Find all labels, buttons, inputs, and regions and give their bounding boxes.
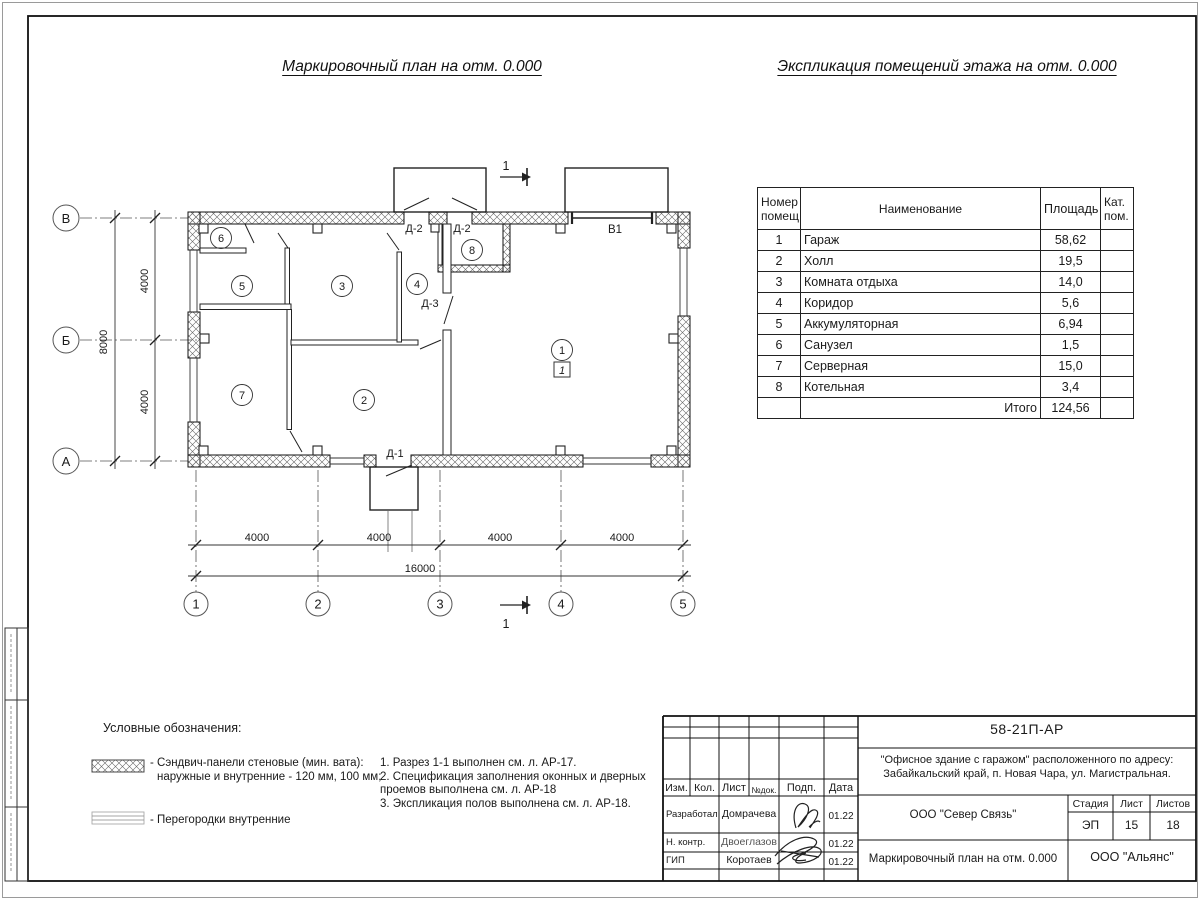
col-header-num: Номер помещ. [758, 188, 801, 230]
legend-note-3: 3. Экспликация полов выполнена см. л. АР… [380, 798, 646, 812]
cell-area: 3,4 [1041, 377, 1101, 398]
explication-table-wrap: Номер помещ. Наименование Площадь Кат. п… [757, 187, 1134, 419]
col-header-num-l1: Номер [761, 195, 797, 209]
col-header-cat-l1: Кат. [1104, 195, 1130, 209]
partition-7-2 [287, 310, 292, 430]
header-podp: Подп. [779, 782, 824, 795]
dim-4000-c: 4000 [488, 532, 512, 544]
legend-swatch-sandwich [92, 760, 144, 772]
axis-label-v: В [62, 211, 71, 226]
door-label-d2a: Д-2 [405, 223, 422, 235]
cell-area: 5,6 [1041, 293, 1101, 314]
dim-4000-e: 4000 [139, 269, 151, 293]
dim-4000-d: 4000 [610, 532, 634, 544]
role-ncontrol: Н. контр. [666, 837, 705, 848]
dimension-lines [115, 210, 691, 576]
cell-area: 15,0 [1041, 356, 1101, 377]
cell-num: 4 [758, 293, 801, 314]
dim-4000-a: 4000 [245, 532, 269, 544]
col-header-num-l2: помещ. [761, 209, 797, 223]
section-label-bottom: 1 [503, 617, 510, 631]
cell-area: 19,5 [1041, 251, 1101, 272]
dim-4000-f: 4000 [139, 390, 151, 414]
cell-name: Санузел [801, 335, 1041, 356]
cell-cat [1101, 272, 1134, 293]
name-developer: Домрачева [719, 808, 779, 821]
section-mark-bottom: 1 [500, 596, 531, 631]
porch-top-left [394, 168, 486, 212]
doc-number: 58-21П-АР [858, 723, 1196, 736]
total-value: 124,56 [1041, 398, 1101, 419]
cell-cat [1101, 230, 1134, 251]
axis-label-2: 2 [314, 597, 321, 612]
col-header-area: Площадь [1041, 188, 1101, 230]
header-list: Лист [719, 782, 749, 795]
legend-notes: 1. Разрез 1-1 выполнен см. л. АР-17. 2. … [380, 757, 646, 811]
contractor-name: ООО "Альянс" [1068, 851, 1196, 864]
date-developer: 01.22 [824, 810, 858, 823]
explication-title: Экспликация помещений этажа на отм. 0.00… [775, 58, 1119, 76]
windows [190, 248, 687, 464]
porch-bottom [370, 467, 418, 510]
cell-num: 2 [758, 251, 801, 272]
cell-cat [1101, 398, 1134, 419]
axis-label-b: Б [62, 333, 71, 348]
dim-16000: 16000 [405, 563, 436, 575]
room-label-6: 6 [218, 233, 224, 245]
cell-num: 6 [758, 335, 801, 356]
cell-cat [1101, 314, 1134, 335]
col-header-cat: Кат. пом. [1101, 188, 1134, 230]
dim-4000-b: 4000 [367, 532, 391, 544]
dimension-texts: 4000 4000 4000 4000 16000 4000 4000 8000 [98, 269, 634, 575]
cell-cat [1101, 377, 1134, 398]
drawing-sheet: { "titles": { "plan": "Маркировочный пла… [0, 0, 1200, 900]
door-label-d2b: Д-2 [453, 223, 470, 235]
room-label-2: 2 [361, 395, 367, 407]
cell-name: Аккумуляторная [801, 314, 1041, 335]
name-ncontrol: Двоеглазов [719, 836, 779, 849]
header-stage: Стадия [1068, 798, 1113, 811]
dim-8000: 8000 [98, 330, 110, 354]
door-label-d1: Д-1 [386, 448, 403, 460]
sheets-total: 18 [1150, 819, 1196, 832]
date-gip: 01.22 [824, 856, 858, 869]
cell-area: 14,0 [1041, 272, 1101, 293]
legend-swatch-partition [92, 812, 144, 824]
header-sheet: Лист [1113, 798, 1150, 811]
axis-label-5: 5 [679, 597, 686, 612]
cell-num: 5 [758, 314, 801, 335]
header-kol: Кол. [690, 782, 719, 795]
cell-empty [758, 398, 801, 419]
header-izm: Изм. [663, 782, 690, 795]
cell-cat [1101, 356, 1134, 377]
name-gip: Коротаев [719, 854, 779, 867]
cell-name: Котельная [801, 377, 1041, 398]
table-row: 8 Котельная 3,4 [758, 377, 1134, 398]
legend-swatches [92, 760, 144, 824]
signatures [775, 804, 821, 864]
table-row: 5 Аккумуляторная 6,94 [758, 314, 1134, 335]
legend-note-2: 2. Спецификация заполнения оконных и две… [380, 771, 646, 785]
cell-name: Холл [801, 251, 1041, 272]
header-sheets: Листов [1150, 798, 1196, 811]
room-circles [211, 228, 573, 411]
explication-table: Номер помещ. Наименование Площадь Кат. п… [757, 187, 1134, 419]
header-data: Дата [824, 782, 858, 795]
room-label-5: 5 [239, 281, 245, 293]
legend-item-partition: - Перегородки внутренние [150, 814, 291, 828]
porch-top-right [565, 168, 668, 212]
partition-5-3 [285, 248, 290, 308]
axis-label-4: 4 [557, 597, 564, 612]
legend-title: Условные обозначения: [103, 722, 242, 736]
gate-v1 [572, 212, 652, 224]
table-row: 7 Серверная 15,0 [758, 356, 1134, 377]
partitions [200, 224, 451, 455]
section-label-top: 1 [503, 159, 510, 173]
cell-area: 58,62 [1041, 230, 1101, 251]
axis-labels-bottom: 1 2 3 4 5 [192, 597, 686, 612]
axis-label-a: А [62, 454, 71, 469]
table-row: 1 Гараж 58,62 [758, 230, 1134, 251]
cell-name: Серверная [801, 356, 1041, 377]
room-label-3: 3 [339, 281, 345, 293]
cell-num: 3 [758, 272, 801, 293]
sheet-number: 15 [1113, 819, 1150, 832]
role-gip: ГИП [666, 855, 685, 866]
room-label-7: 7 [239, 390, 245, 402]
cell-area: 6,94 [1041, 314, 1101, 335]
left-margin-stamp [5, 628, 28, 881]
cell-cat [1101, 293, 1134, 314]
floor-plan: 1 2 3 4 5 6 7 8 1 Д-2 Д-2 Д-3 Д-1 В1 1 [53, 159, 695, 631]
col-header-cat-l2: пом. [1104, 209, 1130, 223]
table-total-row: Итого 124,56 [758, 398, 1134, 419]
col-header-name: Наименование [801, 188, 1041, 230]
porch-steps [388, 510, 412, 552]
cell-num: 7 [758, 356, 801, 377]
room-label-1: 1 [559, 345, 565, 357]
date-ncontrol: 01.22 [824, 838, 858, 851]
table-row: 3 Комната отдыха 14,0 [758, 272, 1134, 293]
signature-domracheva [794, 804, 820, 828]
cell-num: 1 [758, 230, 801, 251]
axis-label-1: 1 [192, 597, 199, 612]
axis-labels-left: В Б А [62, 211, 71, 469]
legend-note-1: 1. Разрез 1-1 выполнен см. л. АР-17. [380, 757, 646, 771]
garage-wall-lower [443, 330, 451, 455]
legend-item-sandwich-l1: - Сэндвич-панели стеновые (мин. вата): [150, 757, 381, 771]
total-label: Итого [801, 398, 1041, 419]
table-row: 4 Коридор 5,6 [758, 293, 1134, 314]
plan-title: Маркировочный план на отм. 0.000 [262, 58, 562, 76]
partition-5-7 [200, 304, 291, 310]
garage-wall-upper [443, 224, 451, 293]
cell-name: Гараж [801, 230, 1041, 251]
legend-note-2b: проемов выполнена см. л. АР-18 [380, 784, 646, 798]
header-ndok: №док. [749, 784, 779, 797]
gate-label-v1: В1 [608, 224, 622, 236]
partition-3-4 [397, 252, 402, 342]
legend-item-sandwich-l2: наружные и внутренние - 120 мм, 100 мм; [150, 771, 381, 785]
cell-name: Коридор [801, 293, 1041, 314]
stage-value: ЭП [1068, 819, 1113, 832]
cell-name: Комната отдыха [801, 272, 1041, 293]
org-name: ООО "Север Связь" [858, 809, 1068, 822]
role-developer: Разработал [666, 809, 718, 820]
room-numbers: 1 2 3 4 5 6 7 8 [218, 233, 565, 407]
floor-mark-label: 1 [559, 365, 565, 377]
cell-cat [1101, 335, 1134, 356]
legend-item-sandwich: - Сэндвич-панели стеновые (мин. вата): н… [150, 757, 381, 784]
project-address-l1: "Офисное здание с гаражом" расположенног… [860, 753, 1194, 767]
axis-label-3: 3 [436, 597, 443, 612]
door-label-d3: Д-3 [421, 298, 438, 310]
cell-area: 1,5 [1041, 335, 1101, 356]
project-address: "Офисное здание с гаражом" расположенног… [860, 753, 1194, 781]
cell-cat [1101, 251, 1134, 272]
project-address-l2: Забайкальский край, п. Новая Чара, ул. М… [860, 767, 1194, 781]
room-label-8: 8 [469, 245, 475, 257]
table-header-row: Номер помещ. Наименование Площадь Кат. п… [758, 188, 1134, 230]
table-row: 2 Холл 19,5 [758, 251, 1134, 272]
window-underlays [188, 248, 690, 467]
cell-num: 8 [758, 377, 801, 398]
stamp-sheet-title: Маркировочный план на отм. 0.000 [858, 853, 1068, 866]
table-row: 6 Санузел 1,5 [758, 335, 1134, 356]
room-label-4: 4 [414, 279, 420, 291]
signature-korotaev [775, 837, 821, 864]
section-mark-top: 1 [500, 159, 531, 186]
